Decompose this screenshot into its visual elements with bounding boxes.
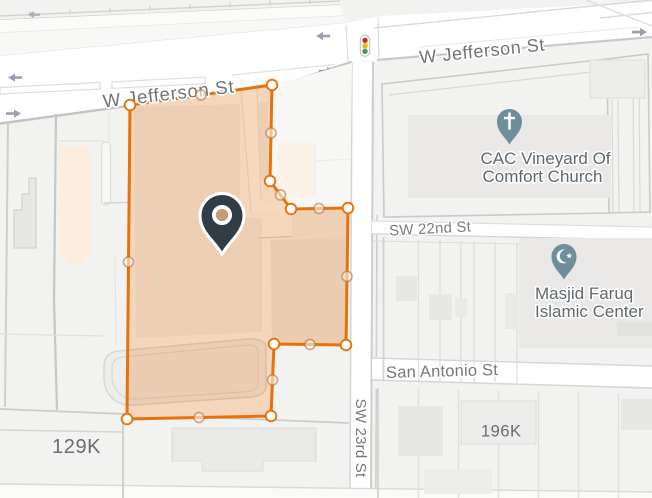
svg-text:Islamic Center: Islamic Center: [535, 302, 644, 321]
svg-text:Comfort Church: Comfort Church: [483, 167, 603, 186]
svg-text:CAC Vineyard Of: CAC Vineyard Of: [480, 149, 610, 168]
svg-text:San Antonio St: San Antonio St: [386, 361, 499, 382]
svg-text:SW 23rd St: SW 23rd St: [352, 399, 369, 478]
svg-text:129K: 129K: [52, 436, 101, 458]
svg-text:196K: 196K: [481, 423, 522, 441]
svg-text:Masjid Faruq: Masjid Faruq: [535, 284, 633, 303]
